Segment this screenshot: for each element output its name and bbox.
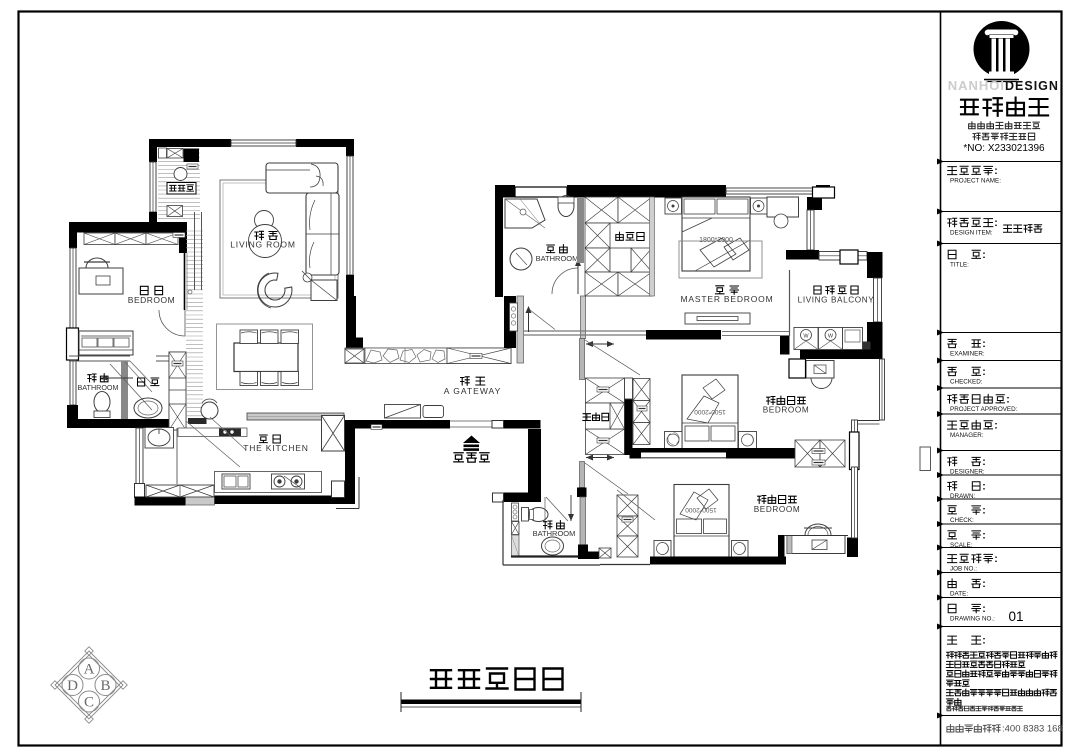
svg-text:DATE:: DATE: [950, 591, 968, 598]
svg-text:W: W [828, 334, 834, 340]
svg-text:LIVING BALCONY: LIVING BALCONY [798, 296, 875, 305]
svg-text:TITLE:: TITLE: [950, 262, 969, 269]
svg-text:DESIGN: DESIGN [1005, 79, 1059, 93]
svg-text:SCALE:: SCALE: [950, 542, 973, 549]
svg-text:CHECK:: CHECK: [950, 517, 974, 524]
svg-text:BEDROOM: BEDROOM [763, 406, 810, 415]
svg-text:EXAMINER:: EXAMINER: [950, 351, 985, 358]
svg-text::: : [982, 481, 986, 493]
svg-text::: : [1006, 394, 1010, 406]
svg-text:BATHROOM: BATHROOM [536, 254, 579, 263]
svg-text:NANHOI: NANHOI [948, 78, 1005, 93]
svg-text:1500*2000: 1500*2000 [694, 408, 726, 415]
svg-text::: : [982, 530, 986, 542]
svg-text:PROJECT NAME:: PROJECT NAME: [950, 178, 1001, 185]
svg-text::: : [982, 505, 986, 517]
svg-text:1500*2000: 1500*2000 [685, 506, 717, 513]
svg-text::: : [982, 578, 986, 590]
svg-text::: : [994, 553, 998, 565]
svg-text::: : [982, 456, 986, 468]
svg-text:JOB NO.:: JOB NO.: [950, 566, 977, 573]
svg-text:DESIGNER:: DESIGNER: [950, 469, 985, 476]
svg-text:PROJECT APPROVED:: PROJECT APPROVED: [950, 406, 1018, 413]
svg-text:DRAWN:: DRAWN: [950, 493, 976, 500]
svg-text::: : [982, 366, 986, 378]
svg-text:C: C [84, 695, 94, 711]
svg-text:D: D [67, 678, 78, 694]
svg-text::: : [994, 165, 998, 177]
svg-text:*NO: X233021396: *NO: X233021396 [963, 143, 1045, 154]
svg-text:BEDROOM: BEDROOM [128, 295, 175, 305]
svg-text:01: 01 [1008, 609, 1023, 624]
svg-text::: : [982, 249, 986, 261]
svg-text::: : [982, 338, 986, 350]
svg-text::: : [982, 635, 986, 647]
svg-text:W: W [803, 334, 809, 340]
svg-text:A: A [84, 662, 95, 678]
svg-text:LIVING ROOM: LIVING ROOM [230, 240, 295, 250]
svg-text:MANAGER:: MANAGER: [950, 432, 984, 439]
svg-text:A GATEWAY: A GATEWAY [444, 386, 502, 396]
svg-text:1800*2000: 1800*2000 [699, 237, 733, 244]
svg-text:BEDROOM: BEDROOM [754, 505, 801, 514]
svg-text:THE KITCHEN: THE KITCHEN [243, 443, 308, 453]
svg-text:CHECKED:: CHECKED: [950, 379, 983, 386]
svg-text::: : [994, 217, 998, 229]
svg-text:B: B [100, 678, 110, 694]
svg-text::: : [982, 603, 986, 615]
svg-text:MASTER BEDROOM: MASTER BEDROOM [681, 294, 774, 304]
svg-text::400 8383 168: :400 8383 168 [1002, 724, 1063, 735]
svg-text:DRAWING NO.:: DRAWING NO.: [950, 616, 995, 623]
svg-text:BATHROOM: BATHROOM [78, 383, 119, 392]
svg-text::: : [994, 420, 998, 432]
svg-text:DESIGN ITEM:: DESIGN ITEM: [950, 230, 993, 237]
